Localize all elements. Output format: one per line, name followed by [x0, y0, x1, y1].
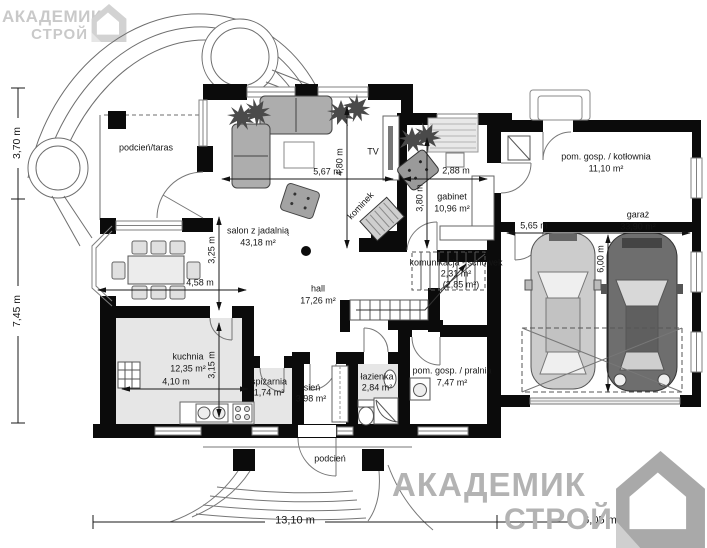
room-label-gabinet: gabinet [437, 193, 467, 202]
room-area-sien: 3,98 m² [296, 395, 327, 404]
dim-exterior-left-top: 3,70 m [12, 127, 23, 159]
room-area-hall: 17,26 m² [300, 297, 336, 306]
brand-name: АКАДЕМИК [392, 468, 613, 501]
room-area-pralnia: 7,47 m² [437, 379, 468, 388]
dim-kuchnia-width: 4,10 m [162, 378, 190, 387]
floor-plan-page: АКАДЕМИК СТРОЙ [0, 0, 707, 548]
dim-exterior-bottom-main: 13,10 m [275, 516, 315, 527]
room-area-kuchnia: 12,35 m² [170, 365, 206, 374]
room-label-salon: salon z jadalnią [227, 227, 289, 236]
dim-jadalnia-width: 4,58 m [186, 279, 214, 288]
brand-watermark-bottom-right: АКАДЕМИК СТРОЙ [392, 468, 613, 535]
room-label-pralnia: pom. gosp. / pralnia [412, 367, 491, 376]
dim-gabinet-height: 3,80 m [416, 184, 425, 212]
room-label-hall: hall [311, 285, 325, 294]
dim-salon-height: 4,80 m [336, 148, 345, 176]
dim-garaz-width: 5,65 m [520, 222, 548, 231]
room-label-lazienka: łazienka [360, 373, 393, 382]
room-label-taras: podcień/taras [119, 144, 173, 153]
room-label-kotlownia: pom. gosp. / kotłownia [561, 153, 651, 162]
room-area-spizarnia: 1,74 m² [254, 389, 285, 398]
dim-gabinet-width: 2,88 m [442, 167, 470, 176]
feature-label-tv: TV [367, 148, 379, 157]
room-label-komunikacja: komunikacja - schowek [409, 259, 502, 268]
room-label-sien: sień [304, 384, 321, 393]
room-label-garaz: garaż [627, 211, 650, 220]
room-area-komunikacja: 2,31 m² [441, 270, 472, 279]
room-label-podcien: podcień [314, 455, 346, 464]
room-area-alt-komunikacja: (2,85 m²) [443, 281, 480, 290]
room-area-lazienka: 2,84 m² [362, 384, 393, 393]
dim-garaz-height: 6,00 m [597, 245, 606, 273]
room-label-spizarnia: spiżarnia [251, 378, 287, 387]
dim-jadalnia-height: 3,25 m [208, 236, 217, 264]
room-area-garaz: 33,90 m² [620, 223, 656, 232]
dim-exterior-left-bottom: 7,45 m [12, 295, 23, 327]
room-area-gabinet: 10,96 m² [434, 205, 470, 214]
dim-kuchnia-height: 3,15 m [208, 351, 217, 379]
room-area-salon: 43,18 m² [240, 239, 276, 248]
room-area-kotlownia: 11,10 m² [589, 165, 624, 174]
salon-furniture [227, 89, 404, 241]
floor-plan-drawing [0, 0, 707, 548]
brand-name-2: СТРОЙ [504, 505, 613, 535]
room-label-kuchnia: kuchnia [172, 353, 203, 362]
car-light [525, 233, 601, 389]
car-dark [601, 233, 683, 391]
